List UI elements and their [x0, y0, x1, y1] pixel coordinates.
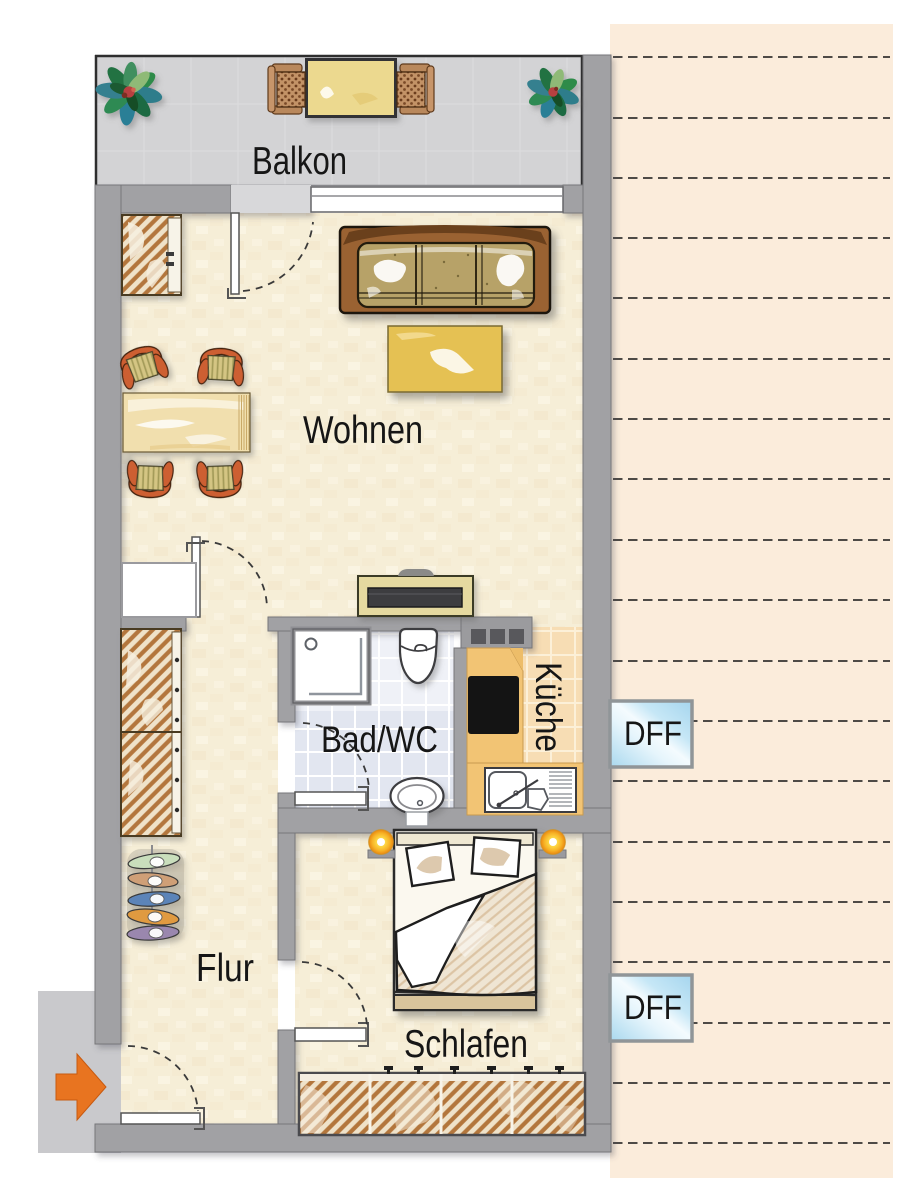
svg-text:DFF: DFF [624, 989, 682, 1027]
svg-text:Bad/WC: Bad/WC [321, 719, 438, 760]
svg-text:Wohnen: Wohnen [303, 409, 423, 452]
svg-text:Schlafen: Schlafen [404, 1023, 528, 1066]
svg-text:DFF: DFF [624, 715, 682, 753]
svg-text:Balkon: Balkon [252, 140, 347, 183]
svg-text:Küche: Küche [528, 662, 569, 752]
svg-text:Flur: Flur [196, 947, 254, 990]
